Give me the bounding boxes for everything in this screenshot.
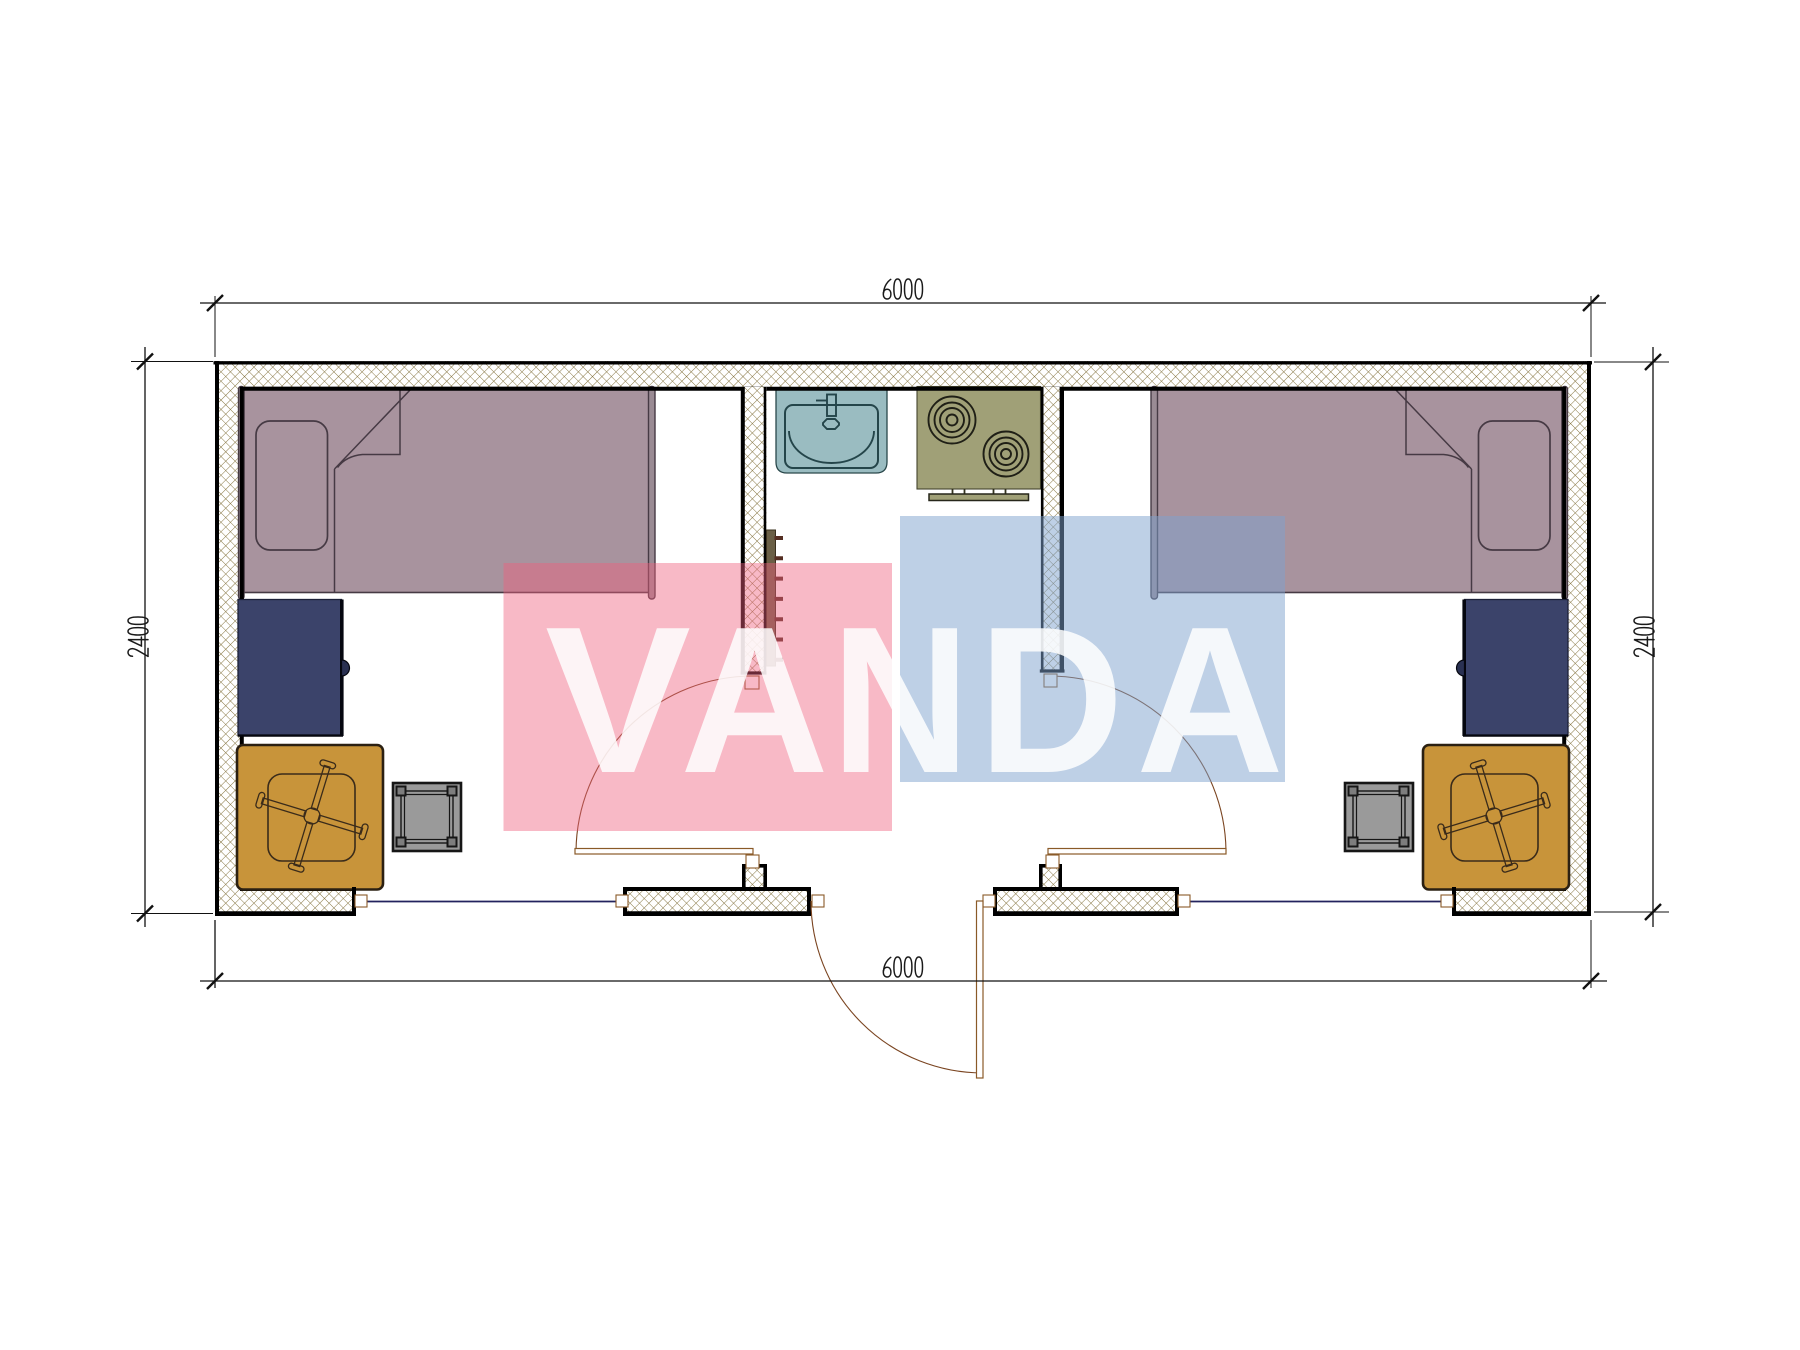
svg-text:A: A xyxy=(1136,584,1284,817)
svg-text:D: D xyxy=(978,584,1124,817)
svg-text:N: N xyxy=(831,584,970,817)
svg-text:A: A xyxy=(680,584,829,817)
svg-text:V: V xyxy=(545,584,691,817)
